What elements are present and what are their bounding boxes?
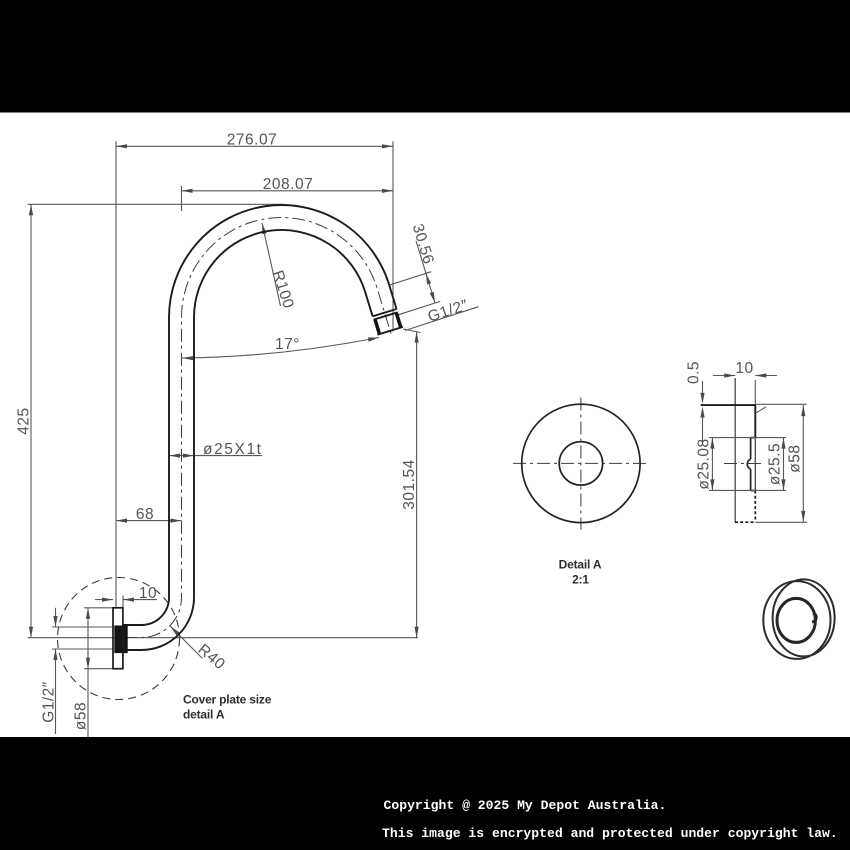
svg-text:17°: 17° xyxy=(275,336,300,353)
svg-text:G1/2″: G1/2″ xyxy=(41,681,58,723)
svg-text:208.07: 208.07 xyxy=(263,176,313,193)
svg-text:ø58: ø58 xyxy=(73,702,90,730)
svg-text:425: 425 xyxy=(16,407,33,434)
svg-text:2:1: 2:1 xyxy=(572,573,589,587)
svg-text:10: 10 xyxy=(139,585,157,602)
svg-text:Detail A: Detail A xyxy=(559,558,602,572)
svg-text:0.5: 0.5 xyxy=(686,361,703,384)
svg-text:10: 10 xyxy=(735,360,753,377)
svg-text:68: 68 xyxy=(136,506,154,523)
svg-text:detail A: detail A xyxy=(183,708,225,722)
svg-text:ø25.08: ø25.08 xyxy=(696,438,713,489)
svg-text:ø58: ø58 xyxy=(787,444,804,472)
svg-text:276.07: 276.07 xyxy=(227,132,277,149)
svg-text:301.54: 301.54 xyxy=(401,459,418,509)
svg-text:Cover plate size: Cover plate size xyxy=(183,693,272,707)
svg-text:This image is encrypted and pr: This image is encrypted and protected un… xyxy=(382,826,838,841)
svg-text:ø25X1t: ø25X1t xyxy=(203,441,263,458)
svg-text:ø25.5: ø25.5 xyxy=(767,443,784,485)
svg-text:Copyright @ 2025 My Depot Aust: Copyright @ 2025 My Depot Australia. xyxy=(384,798,667,813)
